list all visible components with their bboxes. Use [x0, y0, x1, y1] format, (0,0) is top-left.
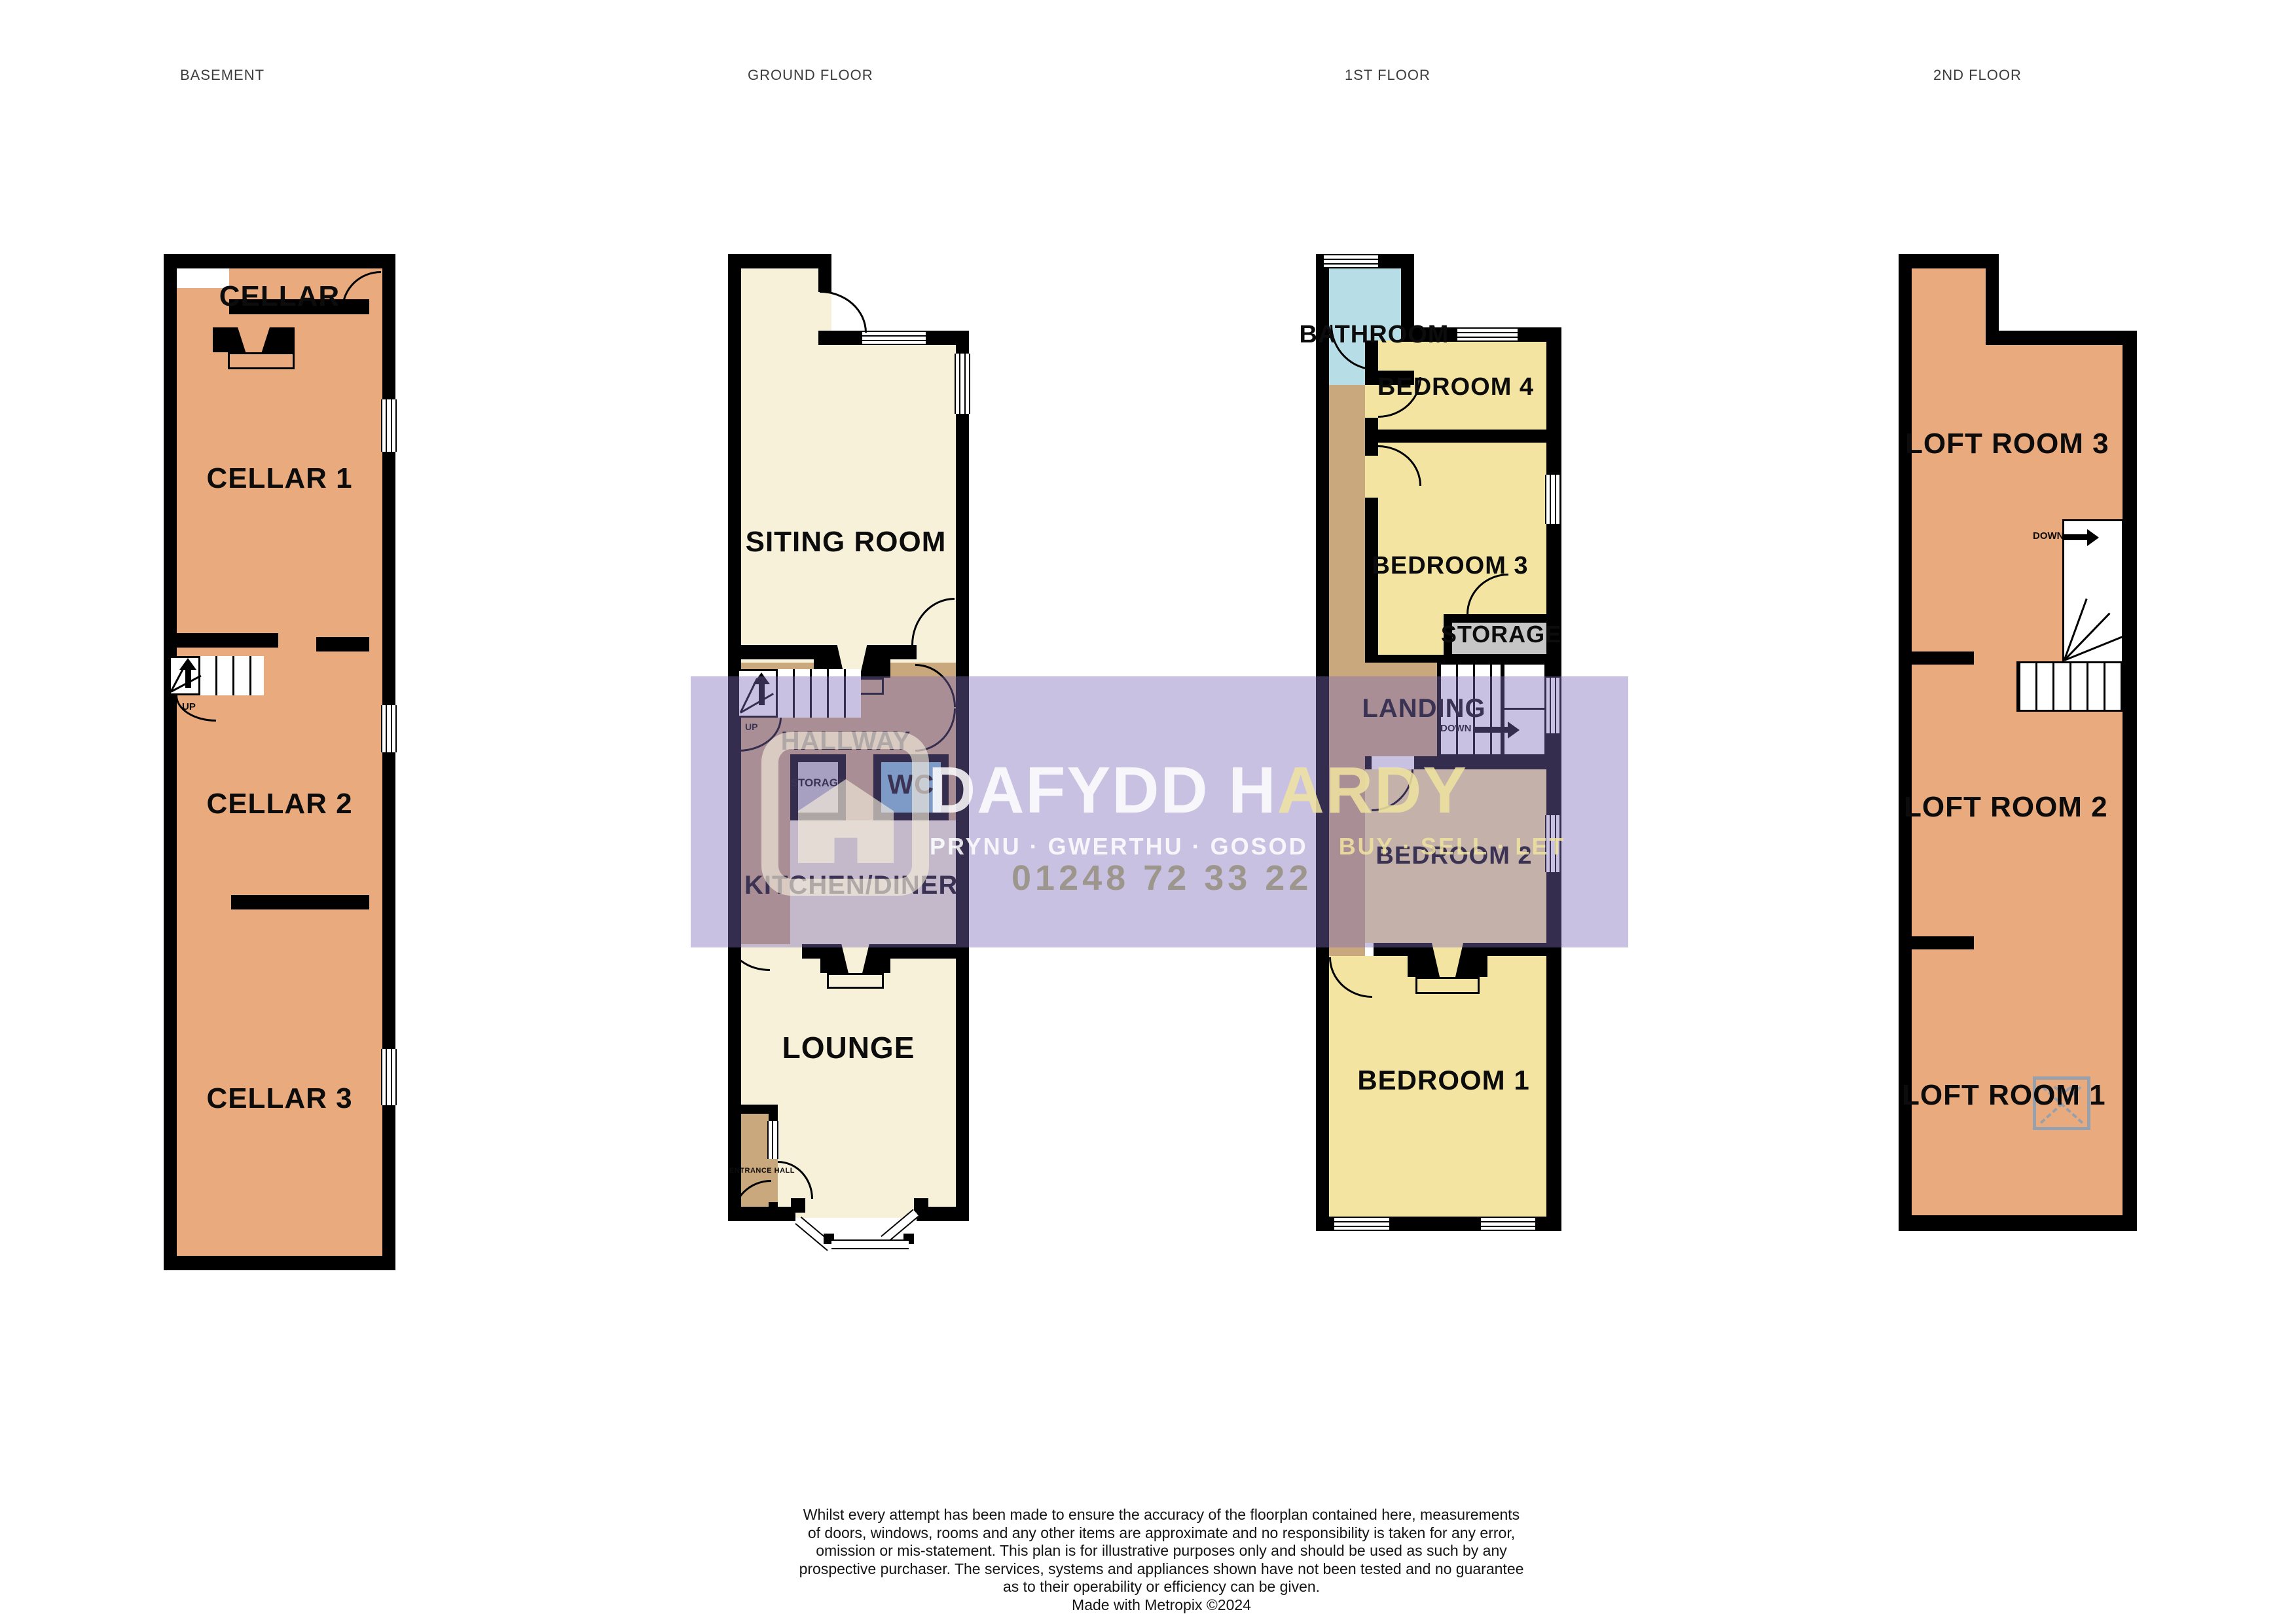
window — [1334, 1217, 1389, 1231]
room-label-cellar3: CELLAR 3 — [177, 1082, 382, 1115]
chimney-breast — [213, 327, 295, 352]
floor-title-first: 1ST FLOOR — [1345, 67, 1430, 84]
watermark-brand: DAFYDD HARDY — [928, 753, 1468, 828]
room-label-lounge: LOUNGE — [750, 1030, 947, 1065]
wall — [1365, 655, 1444, 663]
basement-stairs — [169, 656, 262, 695]
room-label-cellar2: CELLAR 2 — [177, 788, 382, 820]
room-label-cellar1: CELLAR 1 — [177, 462, 382, 495]
chimney-recess — [228, 352, 295, 369]
floor-title-second: 2ND FLOOR — [1933, 67, 2022, 84]
room-label-cellar: CELLAR — [177, 280, 382, 313]
down-arrow — [2062, 534, 2088, 540]
wall — [231, 895, 369, 909]
wall — [1899, 1215, 2137, 1231]
floorplan-canvas: BASEMENT GROUND FLOOR 1ST FLOOR 2ND FLOO… — [0, 0, 2296, 1614]
door-arc — [820, 291, 867, 333]
chimney-recess — [1415, 977, 1480, 994]
window — [767, 1121, 779, 1159]
window — [381, 399, 397, 452]
wall — [1986, 254, 1999, 332]
bay-window — [831, 1239, 909, 1249]
wall — [1365, 443, 1378, 456]
chimney-breast — [1408, 943, 1487, 977]
disclaimer-line: as to their operability or efficiency ca… — [657, 1578, 1666, 1596]
room-label-bathroom: BATHROOM — [1299, 321, 1449, 349]
room-label-loft2: LOFT ROOM 2 — [1904, 791, 2100, 824]
wall — [164, 1256, 395, 1270]
basement-plan: UP CELLAR CELLAR 1 CELLAR 2 CELLAR 3 — [164, 254, 395, 1275]
wall — [728, 254, 831, 268]
watermark-tagline-welsh: PRYNU · GWERTHU · GOSOD — [930, 833, 1308, 860]
wall — [2123, 331, 2137, 1231]
window — [955, 354, 970, 414]
watermark-brand-left: DAFYDD H — [928, 754, 1277, 827]
wall — [1899, 936, 1974, 949]
watermark-phone: 01248 72 33 22 — [1011, 858, 1312, 898]
room-label-bedroom3: BEDROOM 3 — [1355, 552, 1545, 580]
room-label-entrance-hall: ENTRANCE HALL — [729, 1167, 795, 1175]
second-floor-plan: DOWN LOFT ROOM 3 LOFT ROOM 2 LOFT ROOM 1 — [1899, 254, 2137, 1238]
chimney-notch — [838, 944, 873, 973]
room-label-bedroom1: BEDROOM 1 — [1345, 1065, 1542, 1096]
wall — [316, 637, 369, 651]
bay-post — [791, 1198, 805, 1213]
wall — [1365, 430, 1546, 443]
window — [381, 1049, 397, 1105]
disclaimer-line: prospective purchaser. The services, sys… — [657, 1560, 1666, 1579]
chimney-notch — [234, 327, 274, 352]
disclaimer-line: omission or mis-statement. This plan is … — [657, 1542, 1666, 1560]
bay-post — [914, 1198, 928, 1213]
floor-title-ground: GROUND FLOOR — [748, 67, 873, 84]
room-label-bedroom4: BEDROOM 4 — [1365, 373, 1546, 401]
disclaimer-line: of doors, windows, rooms and any other i… — [657, 1524, 1666, 1543]
stair-treads — [198, 656, 264, 695]
wall — [164, 633, 278, 648]
wall — [1899, 254, 1999, 268]
wall — [164, 254, 395, 268]
wall — [1365, 418, 1378, 430]
window — [862, 331, 926, 345]
wall — [1899, 651, 1974, 665]
chimney-notch — [1428, 943, 1467, 977]
stairs-down-label: DOWN — [2033, 530, 2064, 541]
window — [1545, 475, 1561, 524]
loft-stairs-flight — [2016, 661, 2124, 712]
disclaimer-credit: Made with Metropix ©2024 — [657, 1596, 1666, 1614]
wall — [818, 254, 831, 292]
chimney-recess — [827, 973, 884, 989]
window — [1481, 1217, 1535, 1231]
room-label-storage-first: STORAGE — [1439, 621, 1563, 648]
stair-winder — [2064, 613, 2111, 661]
down-arrow-head — [2087, 529, 2099, 546]
up-arrow-head — [179, 658, 196, 670]
floor-title-basement: BASEMENT — [180, 67, 264, 84]
window — [381, 705, 397, 752]
watermark-tagline: PRYNU · GWERTHU · GOSOD BUY · SELL · LET — [930, 833, 1565, 860]
watermark-tagline-english: BUY · SELL · LET — [1339, 833, 1566, 860]
disclaimer: Whilst every attempt has been made to en… — [657, 1506, 1666, 1614]
window — [1457, 327, 1518, 342]
window — [1324, 254, 1378, 268]
wall — [1986, 331, 2137, 345]
watermark-brand-right: ARDY — [1277, 754, 1468, 827]
room-label-siting-room: SITING ROOM — [741, 526, 951, 559]
room-label-loft1: LOFT ROOM 1 — [1902, 1079, 2105, 1112]
wall — [769, 1105, 778, 1121]
chimney-breast — [820, 944, 890, 973]
wall — [164, 254, 177, 1270]
room-label-loft3: LOFT ROOM 3 — [1905, 428, 2108, 460]
disclaimer-line: Whilst every attempt has been made to en… — [657, 1506, 1666, 1524]
